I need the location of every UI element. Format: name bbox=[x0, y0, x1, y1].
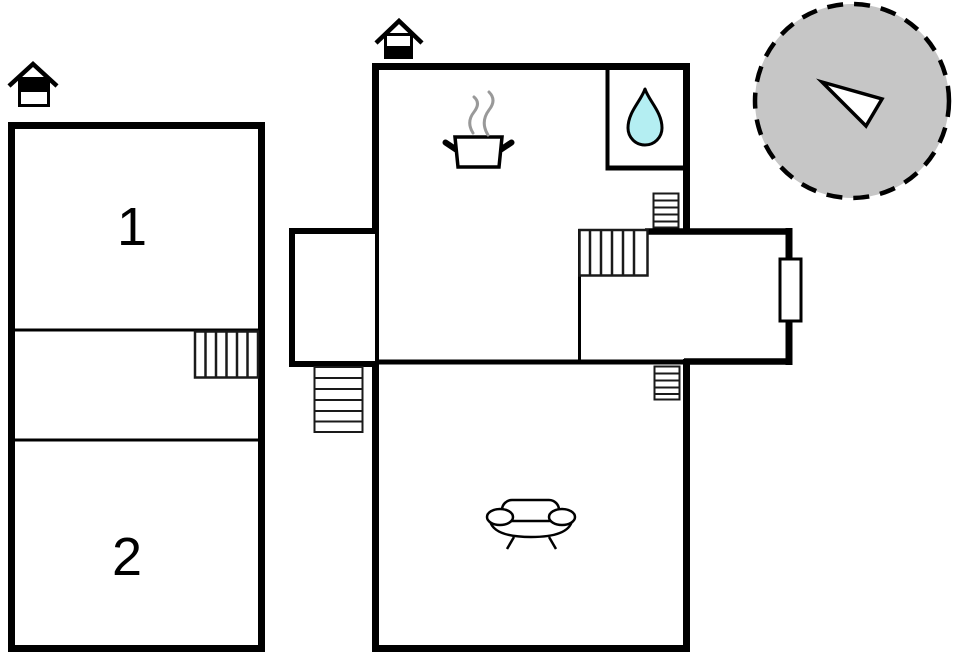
house-icon-filled-level bbox=[18, 77, 50, 92]
left-building: 1 2 bbox=[9, 64, 262, 649]
house-icon-filled-level bbox=[384, 46, 413, 59]
sofa-armrest-left bbox=[487, 509, 513, 525]
porch-outline bbox=[292, 231, 375, 364]
porch bbox=[292, 231, 375, 432]
house-level-icon-bottom-filled bbox=[376, 21, 422, 59]
ladder-lower bbox=[655, 367, 680, 400]
compass bbox=[755, 4, 949, 198]
house-level-icon-top-filled bbox=[9, 64, 57, 106]
door-opening bbox=[780, 259, 801, 321]
floor-plan-canvas: 1 2 bbox=[0, 0, 955, 652]
ladder-upper bbox=[654, 194, 679, 228]
hall-wing bbox=[580, 228, 802, 365]
staircase bbox=[195, 332, 258, 378]
pot-body bbox=[455, 137, 502, 167]
entrance-steps bbox=[315, 367, 363, 432]
floor-plan: 1 2 bbox=[0, 0, 955, 652]
room-1-label: 1 bbox=[117, 197, 147, 257]
sofa-armrest-right bbox=[549, 509, 575, 525]
main-building bbox=[292, 21, 801, 649]
room-2-label: 2 bbox=[112, 527, 142, 587]
hall-staircase bbox=[580, 230, 648, 276]
